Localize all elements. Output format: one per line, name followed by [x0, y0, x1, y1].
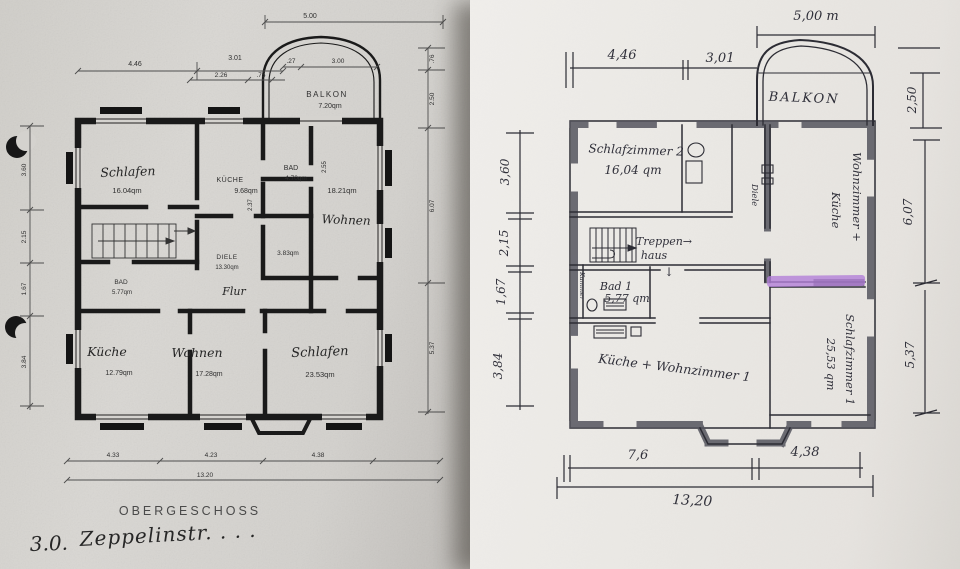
dim-w4: .75	[256, 72, 265, 79]
dim-w2: 3,01	[706, 51, 735, 66]
room-bad-a-area: 4.70qm	[285, 175, 307, 182]
dim-b3: 4.38	[312, 452, 325, 459]
room-abstell-area: 3.83qm	[277, 250, 299, 257]
handwritten-note-prefix: 3.0.	[29, 531, 68, 556]
photocopy-grain	[0, 0, 492, 569]
dim-l4: 3.84	[21, 355, 28, 368]
dim-top: 5.00	[303, 13, 317, 20]
dim-w2: 3.01	[228, 55, 242, 62]
printed-floor-plan: 5.00 4.46 3.01 2.26 .75 .27 3.00 3.60 2.…	[0, 0, 492, 569]
dim-w3: 2.26	[215, 72, 228, 79]
balkon-area: 7.20qm	[318, 103, 342, 110]
dim-b2: 4,38	[790, 445, 820, 460]
balkon-label: BALKON	[767, 90, 839, 108]
dim-top: 5,00 m	[793, 9, 838, 24]
room-bad-a: BAD	[284, 165, 298, 172]
dim-kueche-width: 2.37	[248, 199, 254, 211]
dim-l1: 3.60	[21, 163, 28, 176]
dim-l4: 3,84	[491, 353, 505, 380]
room-wohnen-b: Wohnen	[171, 345, 222, 360]
dim-bk2: 3.00	[332, 58, 345, 65]
room-bad-b: BAD	[114, 279, 128, 286]
dim-r3: 5,37	[903, 341, 917, 368]
dim-l2: 2,15	[497, 230, 511, 258]
room-wohnen-a-area: 18.21qm	[327, 186, 356, 195]
dim-l3: 1.67	[21, 282, 28, 295]
room-flur: Flur	[221, 285, 246, 298]
room-wohnen-b-area: 17.28qm	[195, 371, 222, 378]
paper-grain	[470, 0, 960, 569]
room-bad1-area: 5,77 qm	[604, 292, 649, 305]
room-schlafen-a: Schlafen	[100, 163, 156, 180]
dim-r2: 2.50	[429, 92, 436, 105]
room-schlafzimmer2-area: 16,04 qm	[604, 163, 661, 177]
room-kueche-a: KÜCHE	[216, 176, 243, 184]
dim-b1: 7,6	[628, 448, 649, 463]
room-schlafzimmer1: Schlafzimmer 1	[843, 314, 857, 405]
dim-bk1: .27	[286, 58, 295, 65]
dim-b1: 4.33	[107, 452, 120, 459]
room-wohnzimmer-kueche-2: Küche	[829, 191, 843, 229]
hand-drawn-plan-sheet: 5,00 m 4,46 3,01 2,50 6,07 5,37 3,60 2,1…	[470, 0, 960, 569]
room-kueche-b-area: 12.79qm	[105, 370, 132, 377]
floor-title: OBERGESCHOSS	[119, 504, 261, 518]
dim-l1: 3,60	[498, 158, 512, 185]
room-diele-area: 13.30qm	[215, 265, 238, 271]
dim-r1: .76	[429, 54, 436, 63]
room-kueche-a-area: 9.68qm	[234, 188, 258, 195]
wall-highlight-marker	[767, 275, 865, 287]
room-diele: Diele	[749, 183, 759, 206]
room-wohnzimmer-kueche-1: Wohnzimmer +	[850, 152, 864, 242]
dim-r2: 6,07	[901, 198, 915, 225]
dim-l3: 1,67	[494, 278, 508, 305]
hand-drawn-floor-plan: 5,00 m 4,46 3,01 2,50 6,07 5,37 3,60 2,1…	[470, 0, 960, 569]
dim-total: 13.20	[197, 472, 214, 479]
photo-of-floor-plans: 5.00 4.46 3.01 2.26 .75 .27 3.00 3.60 2.…	[0, 0, 960, 569]
dim-w1: 4.46	[128, 61, 142, 68]
room-schlafen-b-area: 23.53qm	[305, 370, 334, 379]
dim-b2: 4.23	[205, 452, 218, 459]
room-treppenhaus-2: haus	[641, 249, 668, 262]
down-arrow: ↓	[664, 265, 674, 279]
dim-wohnen-height: 2.55	[322, 161, 328, 173]
room-schlafzimmer1-area: 25,53 qm	[824, 337, 837, 390]
dim-w1: 4,46	[607, 48, 637, 63]
dim-l2: 2.15	[21, 230, 28, 243]
dim-r3: 6.07	[429, 199, 436, 212]
room-wohnen-a: Wohnen	[321, 212, 370, 228]
room-schlafen-a-area: 16.04qm	[112, 186, 141, 195]
dim-r4: 5.37	[429, 341, 436, 354]
room-treppenhaus-1: Treppen→	[636, 235, 692, 248]
printed-plan-sheet: 5.00 4.46 3.01 2.26 .75 .27 3.00 3.60 2.…	[0, 0, 492, 569]
room-kueche-b: Küche	[86, 344, 127, 359]
dim-r1: 2,50	[905, 86, 919, 114]
room-kammer: Kammer	[578, 271, 586, 301]
dim-total: 13,20	[672, 492, 713, 510]
room-schlafen-b: Schlafen	[291, 344, 349, 361]
balkon-label: BALKON	[306, 90, 347, 99]
room-bad-b-area: 5.77qm	[112, 290, 132, 296]
room-diele: DIELE	[216, 254, 237, 261]
